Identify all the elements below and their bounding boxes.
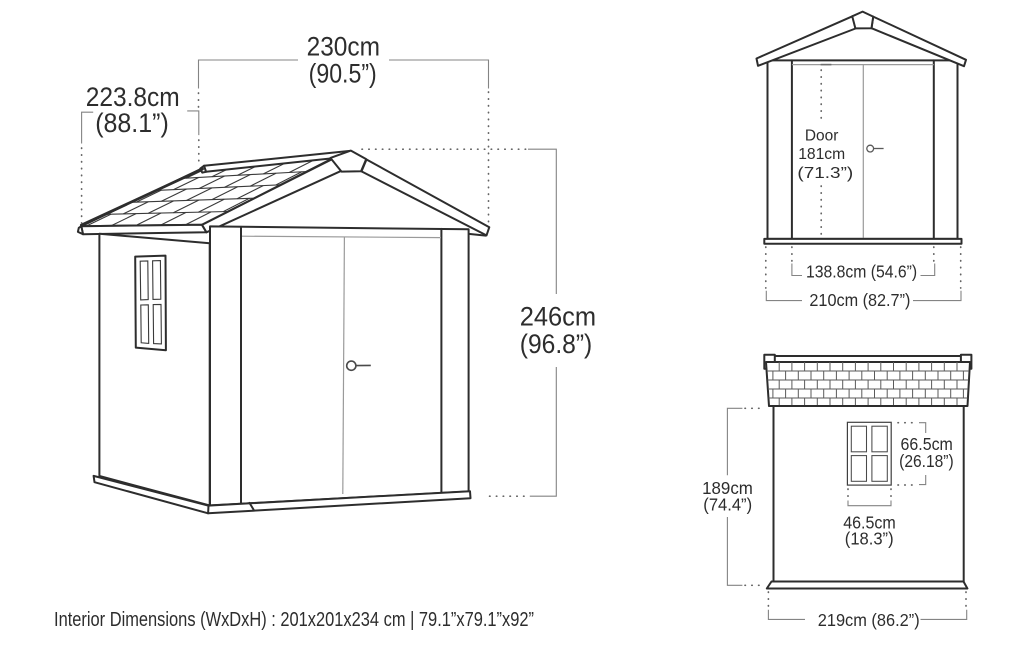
- svg-text:181cm: 181cm: [798, 146, 845, 163]
- svg-text:138.8cm (54.6”): 138.8cm (54.6”): [806, 262, 917, 282]
- svg-text:(96.8”): (96.8”): [520, 329, 593, 359]
- svg-text:(74.4”): (74.4”): [703, 495, 752, 515]
- svg-text:(71.3”): (71.3”): [797, 165, 853, 182]
- svg-text:(18.3”): (18.3”): [845, 528, 894, 548]
- svg-text:(88.1”): (88.1”): [95, 108, 169, 138]
- svg-text:(26.18”): (26.18”): [899, 451, 954, 471]
- svg-text:210cm (82.7”): 210cm (82.7”): [809, 290, 910, 310]
- svg-text:246cm: 246cm: [520, 301, 596, 331]
- svg-text:(90.5”): (90.5”): [309, 59, 377, 89]
- svg-text:219cm (86.2”): 219cm (86.2”): [818, 610, 920, 630]
- svg-text:Door: Door: [805, 127, 839, 144]
- svg-text:Interior Dimensions (WxDxH) :: Interior Dimensions (WxDxH) : 201x201x23…: [54, 608, 534, 631]
- svg-text:230cm: 230cm: [307, 32, 380, 62]
